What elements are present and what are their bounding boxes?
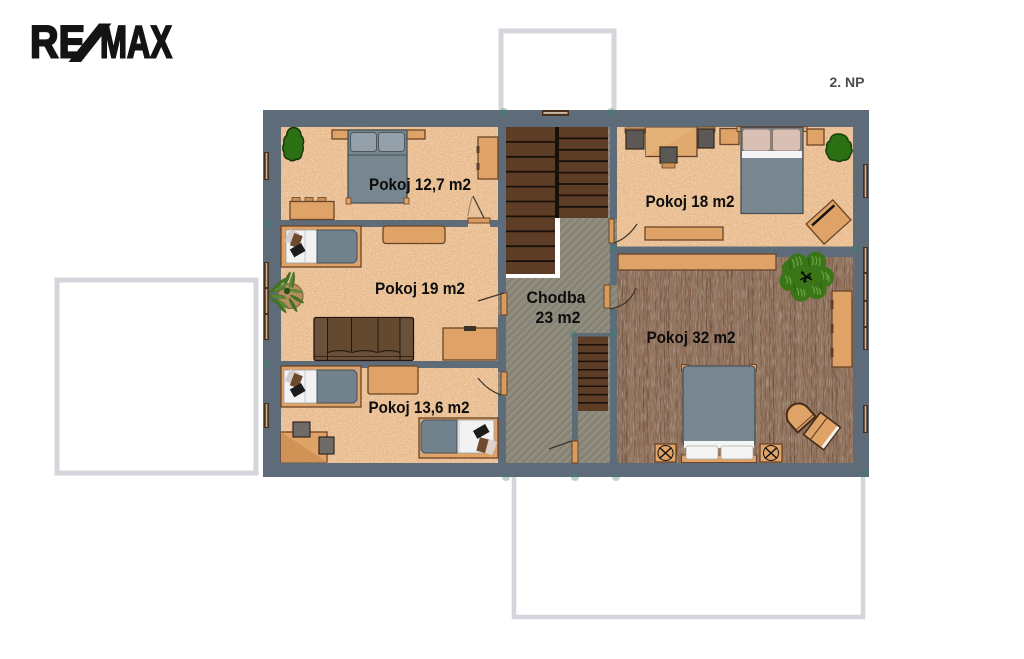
svg-text:2. NP: 2. NP <box>829 74 864 90</box>
svg-text:Pokoj 12,7 m2: Pokoj 12,7 m2 <box>369 176 471 194</box>
svg-text:Pokoj 19 m2: Pokoj 19 m2 <box>375 280 465 298</box>
svg-text:MAX: MAX <box>100 17 172 68</box>
svg-text:Pokoj 32 m2: Pokoj 32 m2 <box>647 329 736 347</box>
svg-text:23 m2: 23 m2 <box>536 309 581 327</box>
svg-text:Pokoj 13,6 m2: Pokoj 13,6 m2 <box>369 399 470 417</box>
svg-text:Chodba: Chodba <box>527 289 587 307</box>
svg-text:Pokoj 18 m2: Pokoj 18 m2 <box>646 193 735 211</box>
